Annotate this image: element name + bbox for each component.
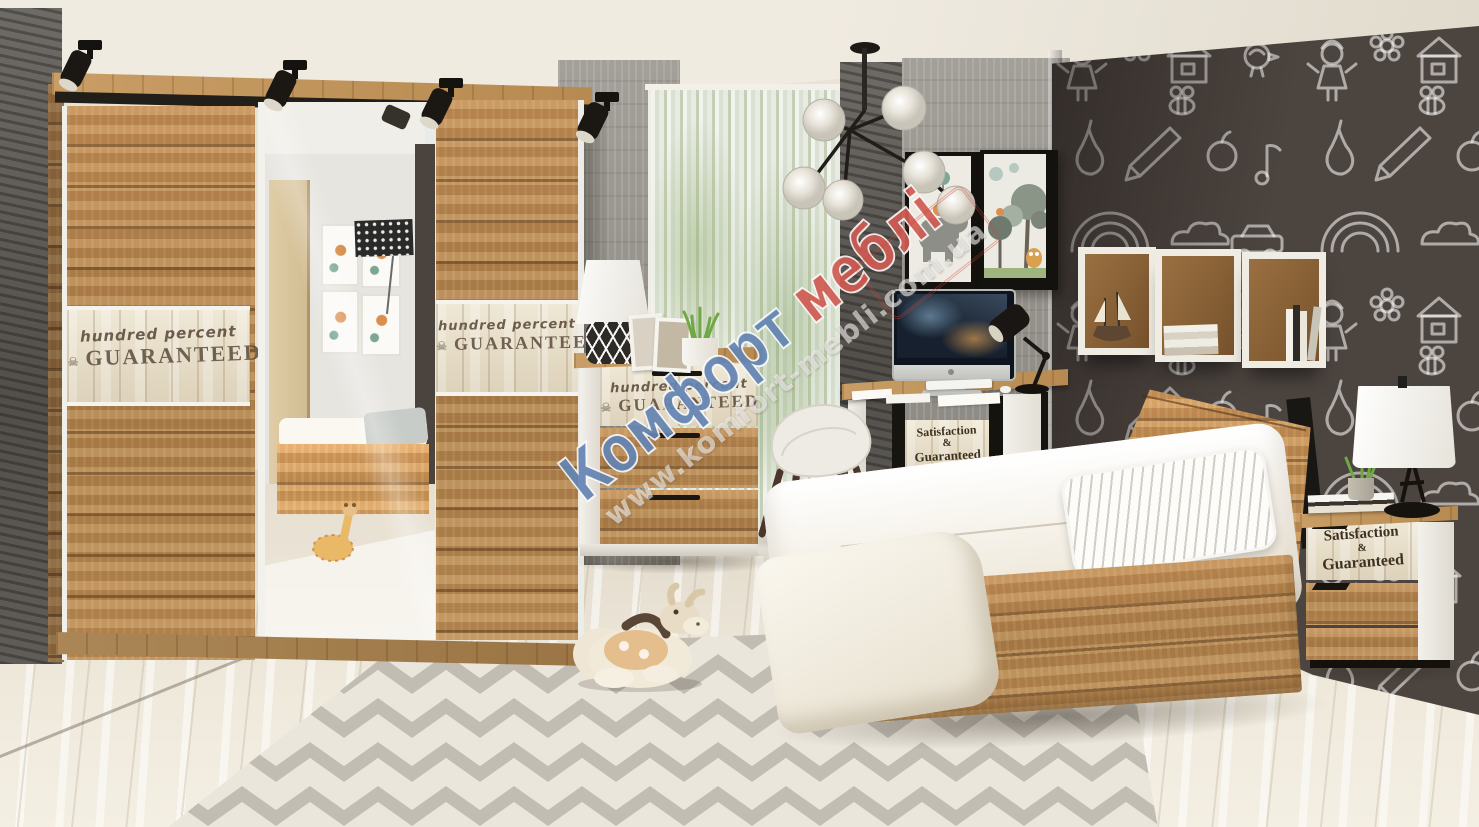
- nightstand-plinth: [1310, 660, 1450, 668]
- cube-shelf-3: [1242, 252, 1326, 368]
- dresser-side-white: [580, 364, 600, 544]
- stamp-line-guaranteed: ☠GUARANTEED: [67, 339, 251, 372]
- nightstand-drawer-3: [1306, 628, 1418, 660]
- dresser-print-drawer: hundred percent ☠GUARANTEED: [600, 364, 758, 426]
- toy-ship: [1083, 266, 1141, 348]
- nightstand: Satisfaction & Guaranteed: [1306, 522, 1454, 668]
- drawer-handle: [648, 433, 700, 438]
- computer-mouse: [1000, 386, 1011, 393]
- spotlight-icon: [56, 40, 619, 146]
- nightstand-print-drawer: Satisfaction & Guaranteed: [1306, 522, 1418, 580]
- drawer-handle: [648, 495, 700, 500]
- table-lamp-finial: [1398, 376, 1407, 388]
- trees-owl-illustration: [984, 154, 1046, 278]
- wardrobe-mirror-door: [258, 102, 442, 648]
- track-spotlights: [55, 30, 675, 148]
- plush-goat-toy: [548, 562, 728, 694]
- skull-stamp-icon: ☠: [600, 401, 613, 415]
- apple-logo-icon: [948, 369, 954, 375]
- table-lamp-shade: [1352, 386, 1456, 468]
- nightstand-drawer-2: [1306, 583, 1418, 625]
- skull-stamp-icon: ☠: [67, 354, 80, 368]
- drawer-handle: [1312, 583, 1350, 590]
- stamp-line-guaranteed: ☠GUARANTEED: [600, 392, 759, 418]
- chandelier: [748, 34, 983, 239]
- plant-pot: [682, 338, 718, 366]
- nightstand-plant-pot: [1348, 478, 1374, 500]
- book-upright: [1307, 306, 1322, 361]
- book-upright: [1286, 309, 1293, 361]
- cube-shelf-2: [1155, 249, 1241, 362]
- mirror-sheen: [265, 102, 435, 648]
- cube-shelf-1: [1078, 247, 1156, 355]
- desk-lamp: [982, 298, 1068, 398]
- dresser: hundred percent ☠GUARANTEED: [580, 364, 758, 556]
- book-upright: [1300, 311, 1307, 361]
- book-upright: [1293, 305, 1300, 361]
- bed-foot-sheet-drape: [753, 525, 1003, 736]
- stamp-line-guaranteed: ☠GUARANTEED: [436, 332, 578, 356]
- wardrobe-left-print-band: hundred percent ☠GUARANTEED: [67, 306, 250, 406]
- bedroom-photo: hundred percent ☠GUARANTEED: [0, 0, 1479, 827]
- book-stack: [1163, 324, 1218, 356]
- nightstand-side-white: [1418, 522, 1454, 660]
- dresser-drawer-2: [600, 428, 758, 488]
- wardrobe-right-print-band: hundred percent ☠GUARANTEED: [436, 300, 578, 396]
- dresser-drawer-3: [600, 490, 758, 544]
- dresser-plinth: [580, 544, 758, 556]
- skull-stamp-icon: ☠: [436, 339, 449, 353]
- art-frame-trees-owl: [980, 150, 1058, 290]
